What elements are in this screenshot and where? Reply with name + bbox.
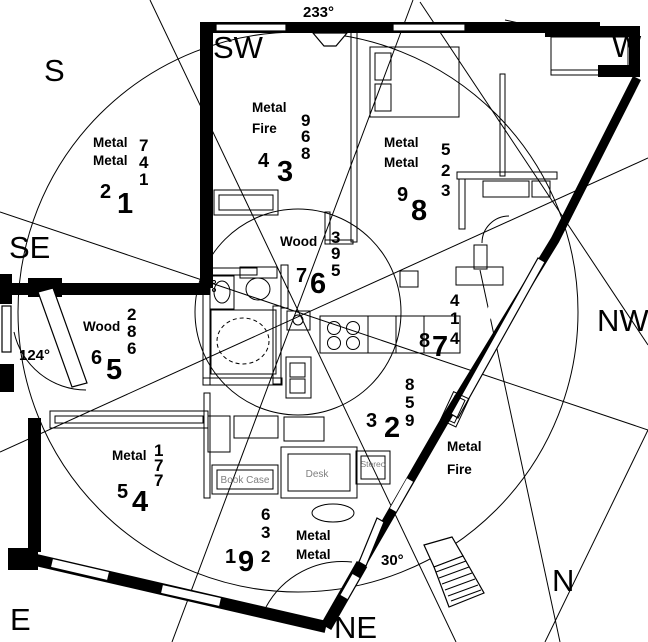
wall-left-upper-block — [0, 274, 12, 304]
stove-burner-3 — [328, 337, 341, 350]
star-chart-e: Metal 5 4 1 7 7 — [112, 441, 163, 518]
star-col: 5 — [441, 140, 450, 159]
star-col: 3 — [261, 523, 270, 542]
sink-tap-dot-1 — [213, 281, 216, 284]
star-main: 7 — [432, 331, 448, 363]
wall-east-room-divider — [204, 393, 210, 498]
toilet-bowl — [246, 278, 270, 300]
element-label: Fire — [252, 121, 277, 136]
star-col: 6 — [261, 505, 270, 524]
star-main: 5 — [106, 354, 122, 386]
fridge-door-1 — [290, 363, 305, 377]
star-col: 1 — [450, 309, 459, 328]
stereo-label: Stereo — [360, 459, 385, 469]
element-label: Metal — [384, 155, 419, 170]
star-chart-nw: 8 7 4 1 4 — [419, 291, 460, 363]
compass-label-e: E — [10, 602, 31, 637]
star-main: 6 — [310, 268, 326, 300]
compass-label-s: S — [44, 53, 65, 88]
stove-burner-4 — [347, 337, 360, 350]
closet-box-1 — [483, 181, 529, 197]
sector-line-extra-3 — [545, 430, 648, 642]
element-label: Metal — [112, 448, 147, 463]
angle-sitting: 30° — [381, 552, 404, 569]
compass-label-w: W — [612, 29, 642, 64]
facing-direction-notch — [313, 33, 347, 46]
floor-plan-canvas: S SW W SE NW E NE N 233° 124° 30° Metal … — [0, 0, 648, 642]
star-main: 3 — [277, 156, 293, 188]
star-left: 7 — [296, 265, 307, 287]
star-col: 3 — [441, 181, 450, 200]
bathtub-basin — [217, 318, 269, 364]
element-label: Wood — [280, 234, 317, 249]
angle-entrance: 124° — [19, 347, 50, 364]
star-col: 6 — [127, 339, 136, 358]
wall-stub-kitchen-end — [400, 271, 418, 287]
wall-stub-t-stem — [474, 245, 487, 269]
desk-label: Desk — [306, 469, 330, 480]
star-col: 1 — [139, 170, 148, 189]
element-label: Fire — [447, 462, 472, 477]
sector-line-extra-2 — [480, 270, 560, 642]
star-left: 6 — [91, 347, 102, 369]
fridge-door-2 — [290, 379, 305, 393]
compass-label-sw: SW — [213, 30, 264, 65]
star-col: 5 — [405, 393, 414, 412]
wall-stub-t-bar — [456, 267, 503, 285]
coffee-table — [312, 504, 354, 522]
stove-burner-1 — [328, 322, 341, 335]
element-label: Metal — [93, 135, 128, 150]
star-col: 9 — [405, 411, 414, 430]
bedroom-door-swing — [482, 216, 509, 243]
window-ne-wall-3 — [393, 480, 410, 510]
bathroom-fixtures — [210, 267, 310, 374]
star-left: 5 — [117, 481, 128, 503]
star-col: 2 — [441, 161, 450, 180]
angle-facing: 233° — [303, 4, 334, 21]
star-main: 8 — [411, 195, 427, 227]
star-col: 8 — [301, 144, 310, 163]
star-main: 2 — [384, 412, 400, 444]
compass-label-nw: NW — [597, 303, 648, 338]
window-ne-wall-1 — [588, 112, 600, 138]
element-label: Metal — [296, 547, 331, 562]
star-chart-s: Metal Metal 2 1 7 4 1 — [93, 135, 149, 220]
bed-pillow-1 — [375, 53, 391, 80]
bath-wall-right — [273, 306, 281, 384]
star-left: 4 — [258, 150, 270, 172]
element-label: Metal — [252, 100, 287, 115]
window-left-wall — [2, 306, 11, 352]
e-room-box-1 — [208, 416, 230, 452]
toilet-tank — [240, 267, 277, 278]
element-label: Metal — [93, 153, 128, 168]
compass-label-se: SE — [9, 230, 50, 265]
star-chart-sw: Metal Fire 4 3 9 6 8 — [252, 100, 310, 188]
se-room-sofa — [50, 411, 208, 428]
star-col: 5 — [331, 261, 340, 280]
window-top-right — [393, 24, 465, 31]
star-chart-center: Wood 7 6 3 9 5 — [280, 228, 340, 300]
stove-burner-2 — [347, 322, 360, 335]
star-main: 9 — [238, 546, 254, 578]
star-chart-se: Wood 6 5 2 8 6 — [83, 305, 136, 386]
bed-pillow-2 — [375, 84, 391, 111]
sector-line-e-w — [0, 158, 648, 452]
window-ne-corner — [344, 576, 356, 597]
star-main: 1 — [117, 188, 133, 220]
stairs — [424, 537, 484, 607]
sink-basin — [214, 281, 230, 303]
element-label: Wood — [83, 319, 120, 334]
compass-label-ne: NE — [334, 610, 377, 642]
sliding-door-leaf-upper — [451, 258, 545, 418]
star-col: 8 — [405, 375, 414, 394]
element-label: Metal — [384, 135, 419, 150]
wall-west-of-sw-room — [200, 22, 213, 288]
wall-left-lower-block — [0, 364, 14, 392]
star-left: 3 — [366, 410, 377, 432]
star-chart-ne: Metal Metal 1 9 6 3 2 — [225, 505, 331, 578]
element-label: Metal — [296, 528, 331, 543]
star-chart-w: Metal Metal 9 8 5 2 3 — [384, 135, 450, 227]
wall-hall-vertical — [351, 32, 357, 242]
star-left: 8 — [419, 330, 430, 352]
element-label: Metal — [447, 439, 482, 454]
star-main: 4 — [132, 486, 148, 518]
wall-bedroom-stem — [500, 74, 505, 176]
star-left: 1 — [225, 546, 236, 568]
wall-niche — [459, 179, 465, 229]
compass-label-n: N — [552, 563, 574, 598]
star-left: 2 — [100, 181, 111, 203]
star-col: 7 — [154, 471, 163, 490]
entry-door-leaf — [38, 288, 87, 387]
star-col: 2 — [261, 547, 270, 566]
wall-east-room-left — [28, 418, 41, 552]
star-left: 9 — [397, 184, 408, 206]
star-col: 4 — [450, 329, 460, 348]
book-case-label: Book Case — [221, 475, 270, 486]
feng-shui-floor-plan: S SW W SE NW E NE N 233° 124° 30° Metal … — [0, 0, 648, 642]
star-col: 4 — [450, 291, 460, 310]
e-room-box-3 — [284, 417, 324, 441]
